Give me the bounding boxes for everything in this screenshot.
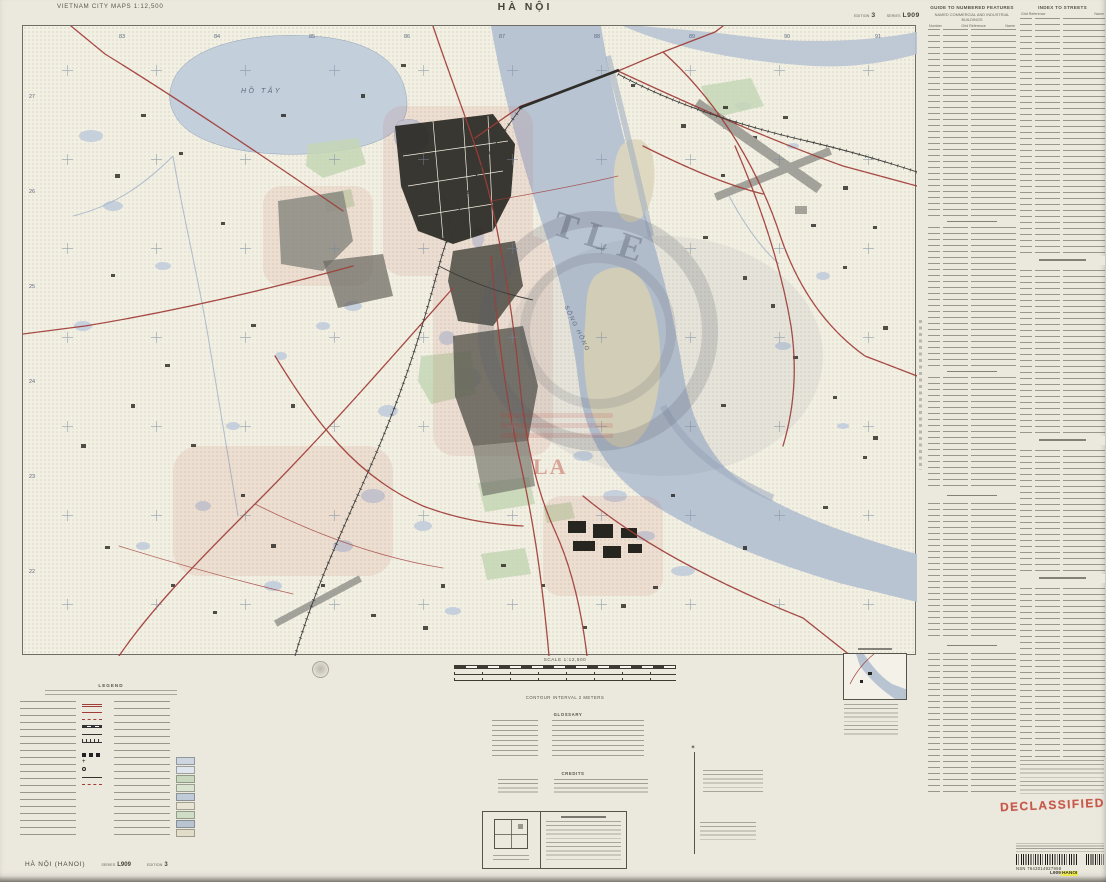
legend-title: LEGEND: [20, 683, 202, 688]
grid-number: 25: [29, 284, 35, 290]
glossary-entries: [492, 720, 644, 756]
footer-edition-value: 3: [164, 862, 167, 868]
credits-title: CREDITS: [498, 771, 648, 776]
footer-sheet-name: HÀ NỘI (HANOI): [25, 861, 85, 868]
legend-column-right: [114, 701, 200, 839]
index-b-entries: [1020, 18, 1105, 758]
col-number: Number: [929, 24, 942, 28]
church-symbol: +: [82, 760, 102, 764]
road-symbol: [82, 712, 102, 713]
index-numbered-features: GUIDE TO NUMBERED FEATURES NAMED COMMERC…: [928, 5, 1016, 793]
route-marker-symbol: [82, 725, 102, 728]
declination-notes: [703, 770, 763, 792]
scale-bar-block: SCALE 1:12,500: [440, 657, 690, 681]
track-symbol: [82, 719, 102, 720]
index-a-entries: [928, 29, 1016, 793]
credits-block: CREDITS: [498, 771, 648, 796]
scale-text: SCALE 1:12,500: [440, 657, 690, 662]
grid-reference-diagram: [483, 812, 541, 868]
footer-series: SERIESL909: [101, 853, 131, 871]
footer-series-label: SERIES: [101, 863, 115, 867]
wall-symbol: [82, 777, 102, 778]
location-inset-map: [843, 653, 907, 700]
edition-value: 3: [871, 12, 875, 19]
glossary-title: GLOSSARY: [492, 712, 644, 717]
footer-edition: EDITION3: [147, 853, 168, 871]
tower-symbol: [82, 767, 86, 771]
map-canvas: HỒ TÂY SÔNG HỒNG 83 84 85 86 87 88 89 90…: [22, 25, 916, 655]
legend-note: [45, 690, 176, 697]
series-title: VIETNAM CITY MAPS 1:12,500: [57, 3, 163, 10]
grid-number: 84: [214, 34, 220, 40]
grid-number: 22: [29, 569, 35, 575]
map-sheet: VIETNAM CITY MAPS 1:12,500 HÀ NỘI EDITIO…: [0, 0, 1106, 882]
legend-color-swatches: [176, 757, 195, 838]
edition-label: EDITION: [854, 14, 869, 18]
index-streets: INDEX TO STREETS Grid Reference Name: [1020, 5, 1105, 757]
series-item: SERIESL909: [887, 4, 920, 22]
grid-number: 91: [875, 34, 881, 40]
col-name: Name: [1005, 24, 1015, 28]
col-name: Name: [1094, 12, 1104, 16]
declination-notes: [700, 822, 756, 842]
scale-bar-miles: [454, 678, 676, 681]
scale-bar-meters: [454, 665, 676, 669]
index-a-subtitle: NAMED COMMERCIAL AND INDUSTRIAL BUILDING…: [928, 12, 1016, 22]
credits-entries: [498, 779, 648, 796]
declassified-stamp: DECLASSIFIED: [1000, 796, 1105, 815]
grid-number: 89: [689, 34, 695, 40]
index-a-column-headers: Number Grid Reference Name: [929, 24, 1015, 28]
margin-note-vertical: [919, 320, 922, 470]
inset-title-bar: [858, 648, 892, 650]
grid-number: 24: [29, 379, 35, 385]
grid-number: 83: [119, 34, 125, 40]
barcode: [1016, 854, 1078, 865]
embossed-seal: [312, 661, 329, 678]
grid-reference-box: [482, 811, 627, 869]
legend-panel: LEGEND +: [20, 683, 202, 847]
road-divided-symbol: [82, 704, 102, 707]
series-label: SERIES: [887, 14, 901, 18]
scale-bar-yards: [454, 672, 676, 675]
grid-number: 27: [29, 94, 35, 100]
railroad-symbol: [82, 739, 102, 743]
stock-number: L909HANOI: [1050, 871, 1078, 876]
grid-number: 86: [404, 34, 410, 40]
index-footnote: [1020, 760, 1104, 794]
glossary-block: GLOSSARY: [492, 712, 644, 756]
footer-series-value: L909: [117, 862, 131, 868]
legend-column-left: +: [20, 701, 106, 839]
edition-series-block: EDITION3 SERIESL909: [854, 4, 920, 22]
grid-crosses: [23, 26, 917, 656]
grid-number: 87: [499, 34, 505, 40]
street-symbol: [82, 734, 102, 735]
footer-edition-label: EDITION: [147, 863, 162, 867]
declination-diagram: [694, 752, 695, 854]
grid-number: 85: [309, 34, 315, 40]
grid-number: 26: [29, 189, 35, 195]
stock-number-prefix: L909: [1050, 871, 1061, 876]
col-grid-ref: Grid Reference: [961, 24, 985, 28]
footer-identification: HÀ NỘI (HANOI) SERIESL909 EDITION3: [25, 853, 168, 871]
west-lake-label: HỒ TÂY: [241, 88, 282, 95]
col-grid-ref: Grid Reference: [1021, 12, 1045, 16]
path-symbol: [82, 784, 102, 785]
index-b-column-headers: Grid Reference Name: [1021, 12, 1104, 16]
grid-number: 23: [29, 474, 35, 480]
series-value: L909: [903, 12, 920, 19]
building-symbol: [82, 753, 86, 757]
legal-fine-print: [1016, 843, 1104, 853]
inset-legend-list: [844, 704, 898, 736]
index-a-title: GUIDE TO NUMBERED FEATURES: [928, 5, 1016, 10]
edition-item: EDITION3: [854, 4, 876, 22]
contour-interval-note: CONTOUR INTERVAL 2 METERS: [430, 695, 700, 700]
index-b-title: INDEX TO STREETS: [1020, 5, 1105, 10]
map-artwork: [23, 26, 917, 656]
grid-number: 90: [784, 34, 790, 40]
grid-reference-instructions: [541, 812, 626, 868]
barcode-small: [1086, 854, 1104, 865]
stock-number-highlight: HANOI: [1061, 871, 1078, 876]
grid-number: 88: [594, 34, 600, 40]
sheet-title: HÀ NỘI: [440, 1, 610, 13]
